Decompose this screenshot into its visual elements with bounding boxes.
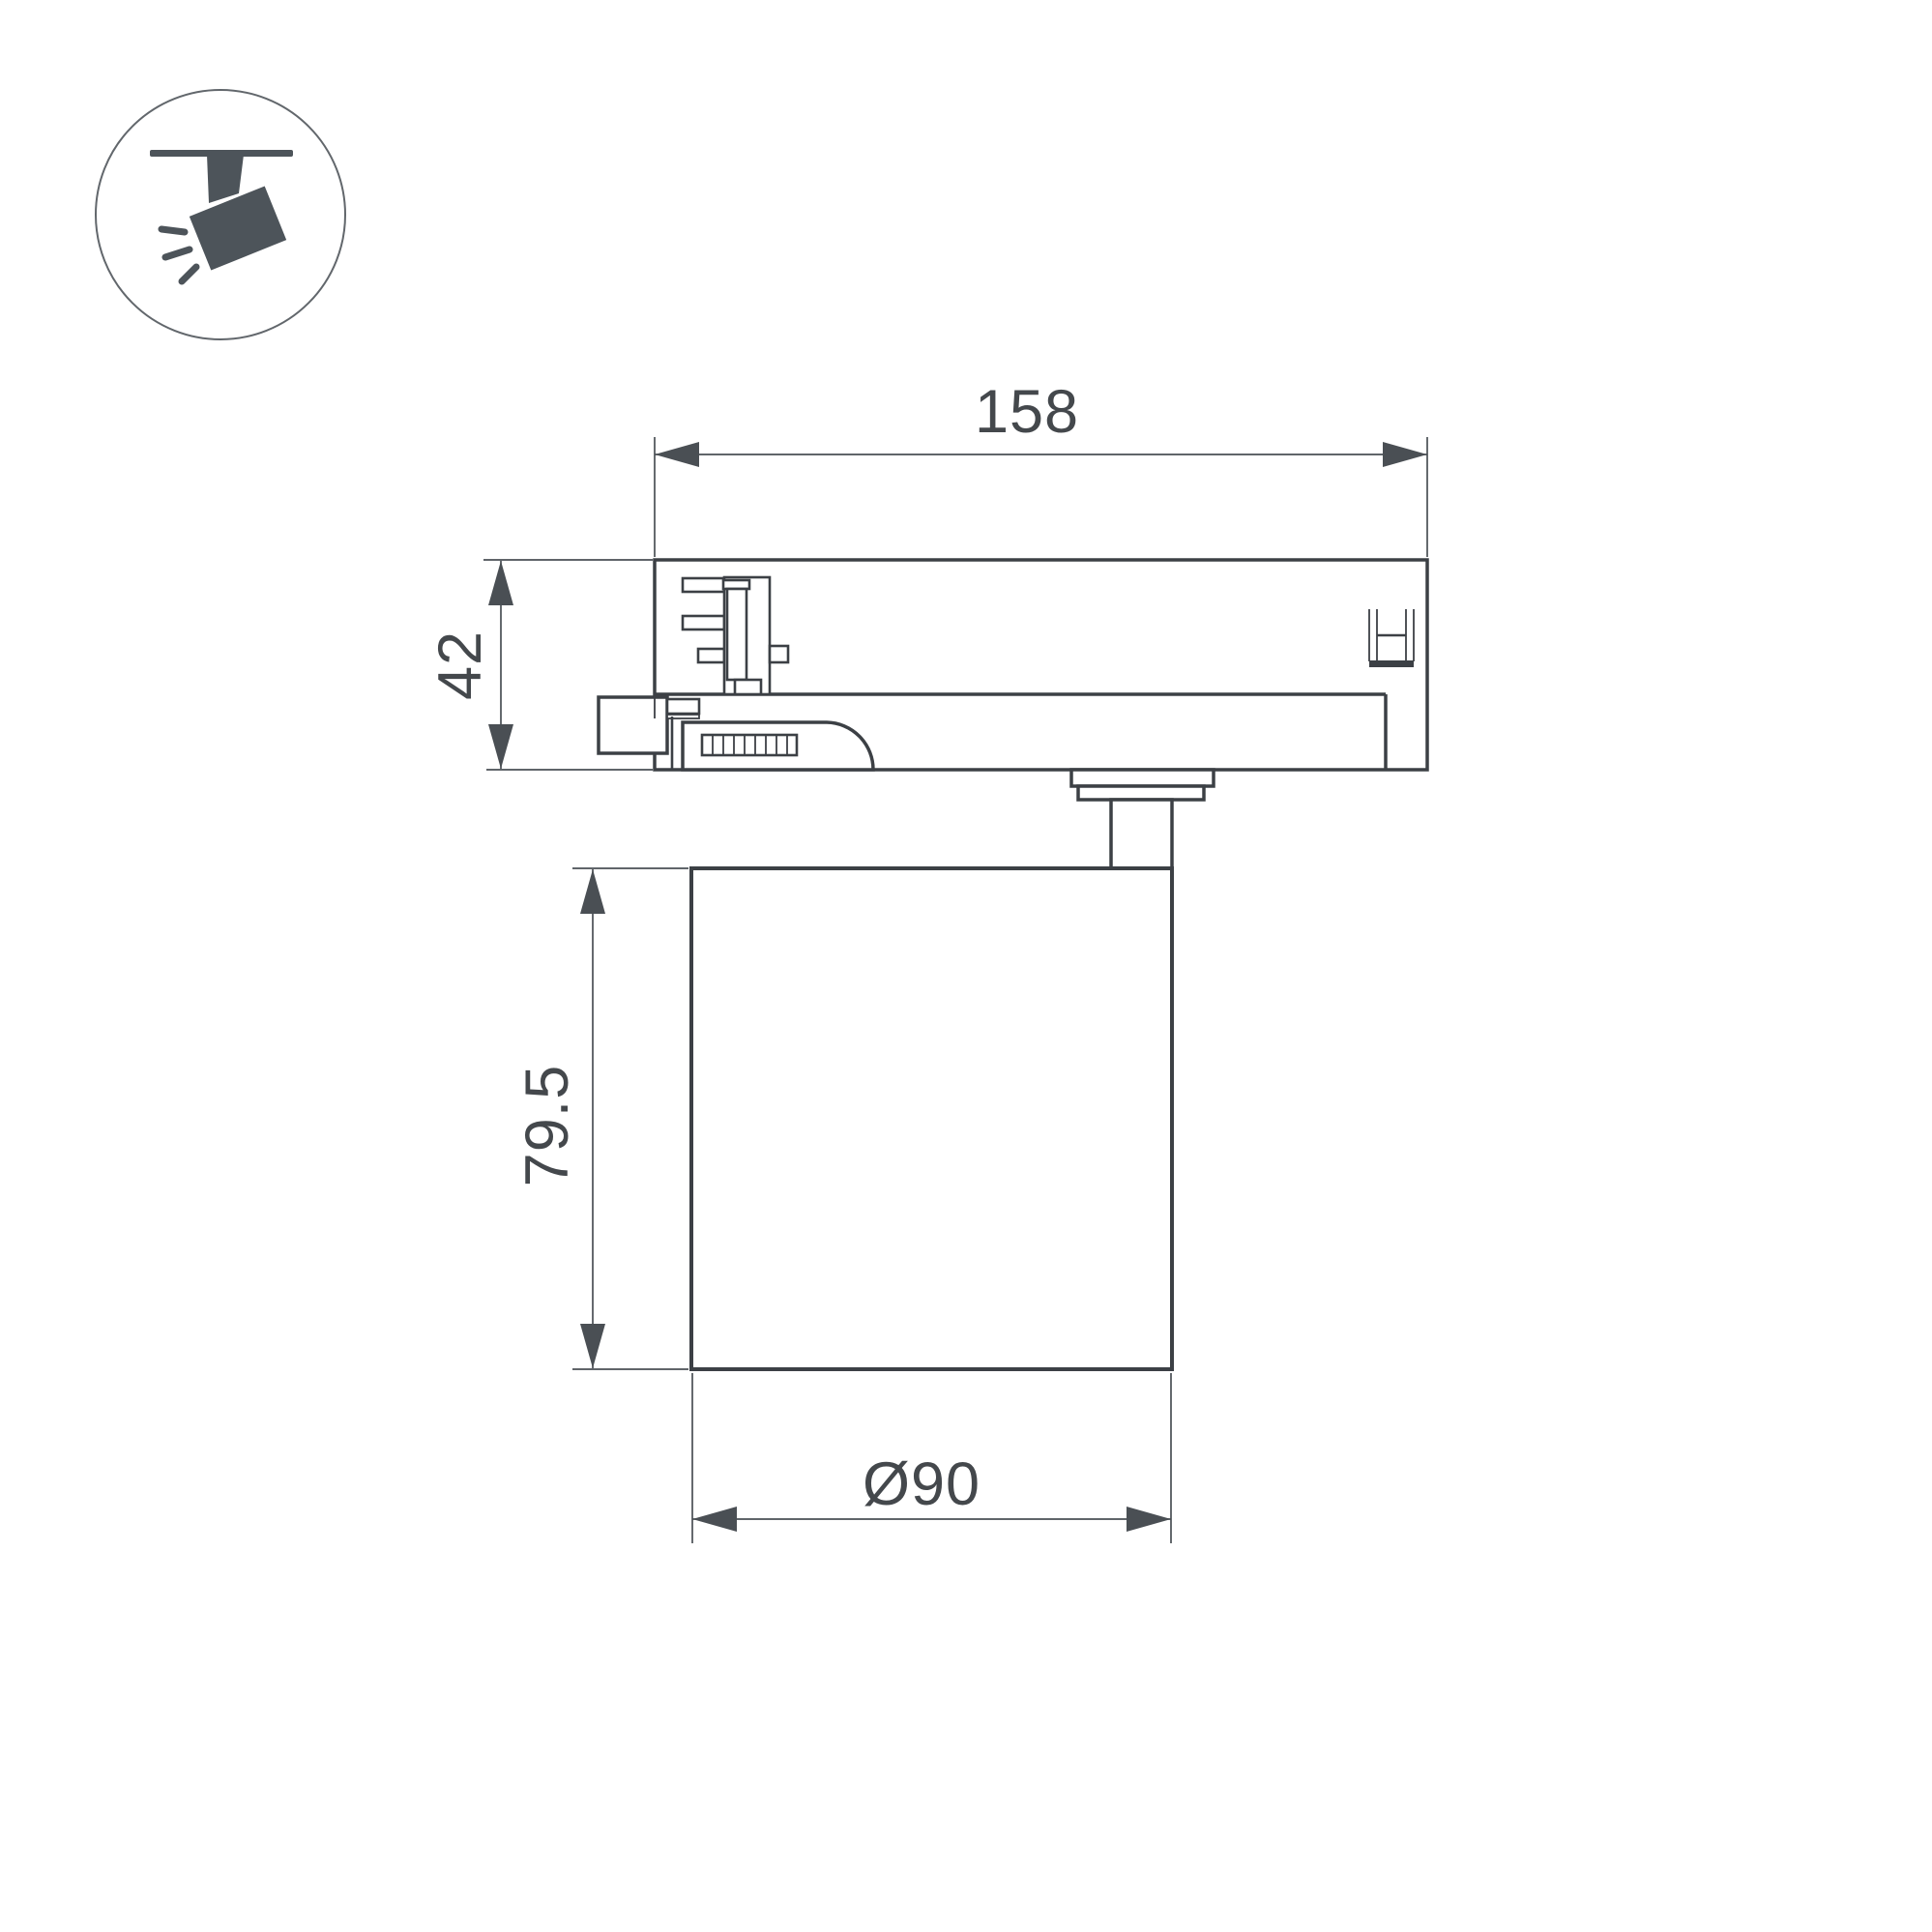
dip-switch-row — [702, 735, 797, 755]
contact-pin-cap — [723, 580, 749, 589]
dimension-track-width: 158 — [655, 378, 1427, 557]
dimension-lamp-height: 79.5 — [513, 868, 688, 1369]
arrow-right — [1127, 1507, 1171, 1532]
dip-switch-frame — [702, 735, 797, 755]
ceiling-track-spotlight-icon — [96, 90, 345, 339]
dimension-lamp-diameter: Ø90 — [692, 1373, 1171, 1543]
dimension-label-track-height: 42 — [426, 630, 494, 700]
arrow-up — [488, 561, 513, 605]
icon-light-ray — [161, 229, 185, 232]
pivot-joint — [1071, 770, 1214, 868]
track-adapter — [599, 560, 1427, 770]
contact-foot — [735, 680, 761, 694]
contact-prong-middle — [683, 616, 724, 629]
dimension-label-lamp-height: 79.5 — [513, 1065, 581, 1187]
arrow-down — [488, 724, 513, 769]
contact-pin — [727, 589, 746, 680]
pivot-flange-lower — [1078, 786, 1204, 800]
pivot-flange-upper — [1071, 770, 1214, 786]
lamp-body — [691, 868, 1172, 1369]
contact-prong-top — [683, 578, 724, 592]
contact-prong-right — [770, 646, 788, 662]
lever-knob — [599, 697, 667, 753]
dimension-label-lamp-diameter: Ø90 — [863, 1450, 981, 1518]
arrow-left — [692, 1507, 737, 1532]
contact-prong-bottom — [698, 649, 724, 662]
arrow-down — [580, 1324, 605, 1368]
clip-base — [1369, 660, 1414, 667]
dimension-label-track-width: 158 — [975, 378, 1079, 446]
technical-drawing-canvas: 158 42 79.5 Ø90 — [0, 0, 1932, 1932]
pivot-stem — [1111, 800, 1172, 868]
arrow-right — [1383, 442, 1427, 467]
lever-step — [667, 699, 699, 714]
arrow-up — [580, 869, 605, 914]
arrow-left — [655, 442, 699, 467]
